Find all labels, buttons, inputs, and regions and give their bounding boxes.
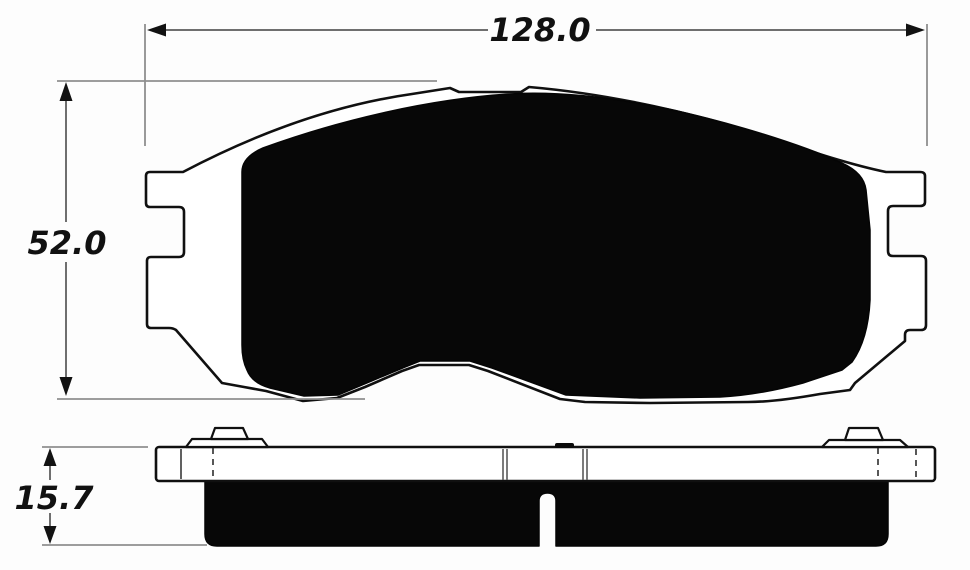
thickness-arrow-top	[44, 448, 57, 466]
plate-top-notch	[555, 443, 574, 448]
height-arrow-top	[60, 82, 73, 101]
shim-clip-right-tab	[845, 428, 883, 440]
height-dimension-label: 52.0	[28, 224, 107, 262]
shim-clip-left-tab	[211, 428, 248, 439]
friction-material-side	[205, 481, 888, 546]
thickness-arrow-bottom	[44, 526, 57, 544]
width-arrow-left	[147, 24, 166, 37]
width-dimension-label: 128.0	[489, 11, 590, 49]
technical-drawing-page: 128.0 52.0 15.7	[0, 0, 970, 570]
width-arrow-right	[906, 24, 925, 37]
brake-pad-dimension-drawing: 128.0 52.0 15.7	[0, 0, 970, 570]
thickness-dimension-label: 15.7	[15, 479, 95, 517]
side-view	[156, 428, 935, 546]
height-arrow-bottom	[60, 377, 73, 396]
front-view	[146, 87, 926, 403]
friction-material-front	[242, 93, 870, 398]
shim-clip-left	[186, 439, 268, 447]
backing-plate-side	[156, 447, 935, 481]
